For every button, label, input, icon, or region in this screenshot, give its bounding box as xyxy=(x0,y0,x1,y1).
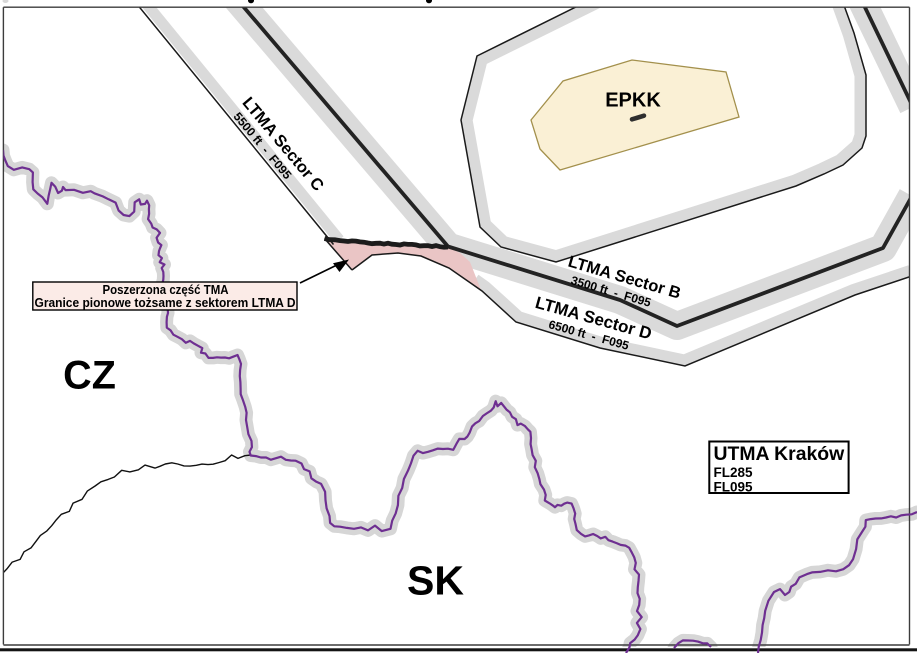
svg-text:Poszerzona część TMA: Poszerzona część TMA xyxy=(103,283,229,297)
svg-text:CZ: CZ xyxy=(63,354,116,398)
svg-text:SK: SK xyxy=(407,557,464,603)
svg-text:Granice pionowe tożsame z sekt: Granice pionowe tożsame z sektorem LTMA … xyxy=(35,296,296,310)
svg-text:FL095: FL095 xyxy=(714,479,754,494)
svg-text:EPKK: EPKK xyxy=(605,90,661,112)
svg-text:UTMA Kraków: UTMA Kraków xyxy=(714,443,846,465)
svg-text:FL285: FL285 xyxy=(714,465,754,480)
